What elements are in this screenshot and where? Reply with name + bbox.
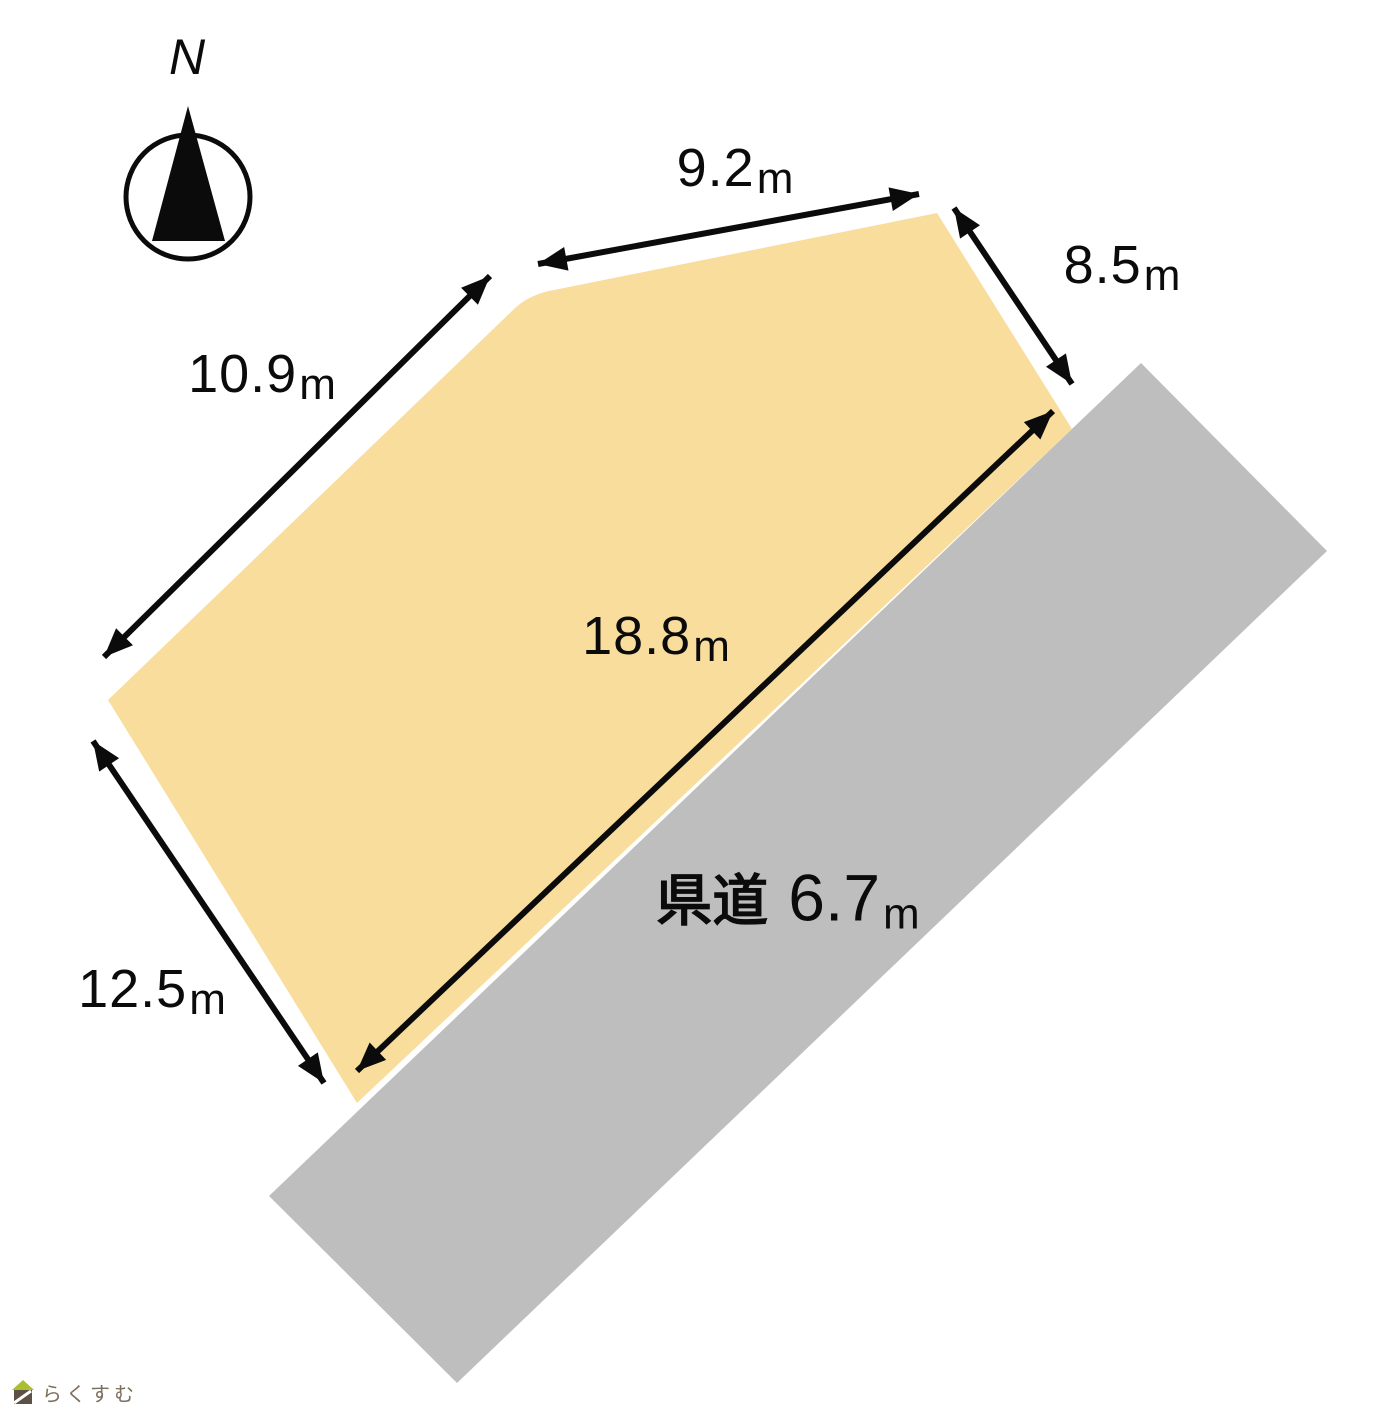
watermark-logo: らくすむ [10, 1378, 138, 1407]
watermark-brand-text: らくすむ [42, 1378, 138, 1407]
dimension-unit: m [693, 622, 730, 671]
road-label: 県道6.7m [656, 857, 919, 938]
dimension-unit: m [1144, 251, 1181, 300]
dimension-value: 18.8 [582, 606, 691, 666]
dimension-label-southwest: 12.5m [78, 958, 226, 1020]
dimension-label-northeast: 8.5m [1064, 234, 1181, 296]
dimension-unit: m [757, 154, 794, 203]
dimension-label-northwest: 10.9m [188, 343, 336, 405]
dimension-unit: m [189, 975, 226, 1024]
dimension-value: 12.5 [78, 959, 187, 1019]
dimension-value: 8.5 [1064, 235, 1142, 295]
dimension-label-road-frontage: 18.8m [582, 605, 730, 667]
road-width-value: 6.7 [788, 861, 880, 935]
dimension-value: 9.2 [677, 138, 755, 198]
dimension-unit: m [299, 360, 336, 409]
road-name: 県道 [656, 870, 768, 933]
road-width-unit: m [883, 890, 920, 939]
site-plan-drawing [0, 0, 1390, 1409]
land-plot-site-plan: N 9.2m 8.5m 10.9m 18.8m 12.5m 県道6.7m らくす… [0, 0, 1390, 1409]
dimension-value: 10.9 [188, 344, 297, 404]
dimension-label-north: 9.2m [677, 137, 794, 199]
compass-north-label: N [169, 28, 205, 86]
compass [126, 106, 250, 259]
house-icon [10, 1379, 36, 1406]
